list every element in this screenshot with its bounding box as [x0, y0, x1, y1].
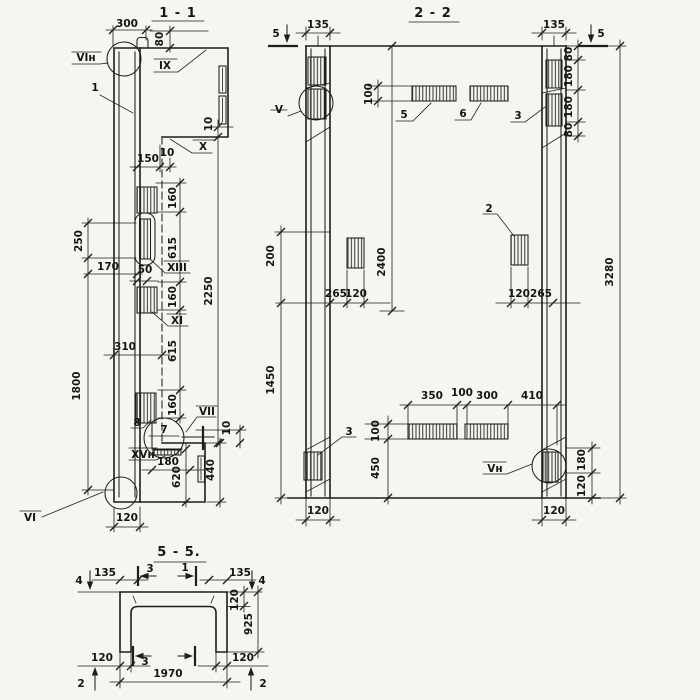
cut-4-left-label: 4: [75, 575, 82, 587]
ref-ix-label: IX: [159, 60, 171, 72]
cut-2-left-label: 2: [77, 678, 84, 690]
dim-160-a-label: 160: [167, 187, 179, 209]
section-2-2-detail-circles: [299, 86, 566, 483]
cut-5-right-label: 5: [597, 28, 604, 40]
dim-615-b-label: 615: [167, 340, 179, 362]
ref-3-bottom-label: 3: [345, 426, 352, 438]
section-5-5: 5 - 5. 4 4 135 135 3 1 120 925 120 120 3…: [75, 545, 268, 690]
dim-135-left-label: 135: [307, 19, 329, 31]
drawing-svg: 1 - 1 300 80 VIн 1 IX 10 X 150 10 160 61…: [0, 0, 700, 700]
ref-v-label: V: [275, 104, 284, 116]
dim-2400-label: 2400: [376, 247, 388, 276]
dim-120-base-left-label: 120: [307, 505, 329, 517]
dim-300-label: 300: [116, 18, 138, 30]
dim-1800-label: 1800: [71, 371, 83, 400]
dim-50-label: 50: [138, 264, 153, 276]
cut-5-left-label: 5: [272, 28, 279, 40]
dim-150-label: 150: [137, 153, 159, 165]
cut-2-right-label: 2: [259, 678, 266, 690]
ref-xv-n-label: XVн: [131, 449, 154, 461]
dim-10-top-label: 10: [203, 117, 215, 132]
ref-2-label: 2: [485, 203, 492, 215]
cut-3-bottom-label: 3: [141, 656, 148, 668]
drawing-sheet: 1 - 1 300 80 VIн 1 IX 10 X 150 10 160 61…: [0, 0, 700, 700]
ref-vi-n-label: VIн: [76, 52, 95, 64]
dim-180-a-label: 180: [563, 65, 575, 87]
ref-v-n-label: Vн: [487, 463, 502, 475]
dim-80-b-label: 80: [563, 123, 575, 138]
dim-3280-label: 3280: [604, 257, 616, 286]
dim-135-right-label: 135: [229, 567, 251, 579]
section-5-5-title: 5 - 5.: [157, 545, 200, 560]
dim-170-label: 170: [97, 261, 119, 273]
section-2-2-title: 2 - 2: [414, 6, 452, 21]
dim-265-left-label: 265: [325, 288, 347, 300]
dim-120-right-label: 120: [508, 288, 530, 300]
ref-x-label: X: [199, 141, 207, 153]
dim-180-b-label: 180: [563, 96, 575, 118]
section-2-2-embeds: [304, 57, 562, 482]
dim-620-label: 620: [171, 466, 183, 488]
dim-250-label: 250: [73, 230, 85, 252]
dim-160-c-label: 160: [167, 394, 179, 416]
dim-1450-label: 1450: [265, 365, 277, 394]
dim-350-label: 350: [421, 390, 443, 402]
dim-135-right-label: 135: [543, 19, 565, 31]
dim-300-label: 300: [476, 390, 498, 402]
section-2-2: 2 - 2 5 5 135 135 100 5 6 3 V 80 180 180…: [265, 6, 626, 526]
ref-xi-label: XI: [171, 315, 183, 327]
dim-925-label: 925: [243, 613, 255, 635]
cut-4-right-label: 4: [258, 575, 265, 587]
cut-3-top-label: 3: [146, 563, 153, 575]
dim-120-web-left-label: 120: [91, 652, 113, 664]
dim-10-node-label: 10: [221, 421, 233, 436]
ref-vii-label: VII: [199, 406, 215, 418]
dim-440-label: 440: [205, 459, 217, 481]
dim-80-a-label: 80: [563, 47, 575, 62]
dim-450-label: 450: [370, 457, 382, 479]
section-1-1: 1 - 1 300 80 VIн 1 IX 10 X 150 10 160 61…: [20, 6, 246, 532]
dim-80-label: 80: [154, 32, 166, 47]
dim-135-left-label: 135: [94, 567, 116, 579]
dim-120-bottom-right-chain-label: 120: [576, 475, 588, 497]
dim-120-base-label: 120: [116, 512, 138, 524]
cut-1-top-label: 1: [181, 562, 188, 574]
dim-100-bottom-label: 100: [370, 420, 382, 442]
ref-3-top-label: 3: [514, 110, 521, 122]
ref-5-label: 5: [400, 109, 407, 121]
dim-265-right-label: 265: [530, 288, 552, 300]
dim-120-flange-label: 120: [229, 589, 241, 611]
ref-7-label: 7: [160, 424, 167, 436]
ref-6-label: 6: [459, 108, 466, 120]
dim-2250-label: 2250: [203, 276, 215, 305]
ref-1-label: 1: [91, 82, 98, 94]
section-5-5-outline: [120, 592, 227, 652]
ref-8-label: 8: [133, 417, 140, 429]
dim-1970-label: 1970: [153, 668, 182, 680]
dim-310-label: 310: [114, 341, 136, 353]
dim-120-base-right-label: 120: [543, 505, 565, 517]
ref-xiii-label: XIII: [167, 262, 187, 274]
dim-160-b-label: 160: [167, 286, 179, 308]
dim-10-offset-label: 10: [160, 147, 175, 159]
dim-100-mid-label: 100: [451, 387, 473, 399]
section-1-1-title: 1 - 1: [159, 6, 197, 21]
section-1-1-embeds: [135, 187, 157, 423]
dim-410-label: 410: [521, 390, 543, 402]
ref-vi-label: VI: [24, 512, 36, 524]
dim-200-label: 200: [265, 245, 277, 267]
dim-180-bottom-right-label: 180: [576, 449, 588, 471]
dim-100-top-label: 100: [363, 83, 375, 105]
dim-615-a-label: 615: [167, 237, 179, 259]
dim-120-left-label: 120: [345, 288, 367, 300]
dim-120-web-right-label: 120: [232, 652, 254, 664]
